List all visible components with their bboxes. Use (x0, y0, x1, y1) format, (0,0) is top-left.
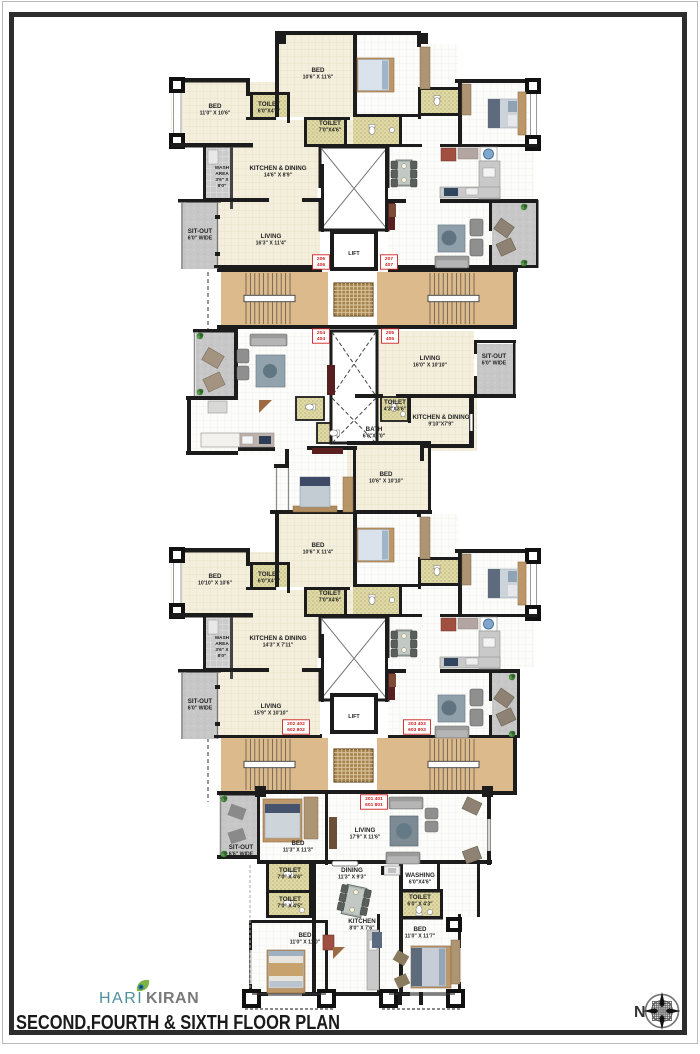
svg-text:LIVING: LIVING (355, 827, 376, 834)
svg-text:8'0": 8'0" (218, 653, 227, 659)
svg-text:TOILET: TOILET (279, 867, 301, 874)
svg-text:407: 407 (385, 262, 393, 268)
svg-text:BED: BED (379, 471, 393, 478)
svg-text:6'0" X 4'3": 6'0" X 4'3" (407, 902, 433, 908)
svg-text:WASH: WASH (215, 165, 230, 171)
svg-text:4'3"X3'6": 4'3"X3'6" (384, 407, 407, 413)
svg-text:16'3" X 11'4": 16'3" X 11'4" (256, 241, 287, 247)
svg-text:KITCHEN: KITCHEN (348, 918, 376, 925)
svg-text:KITCHEN & DINING: KITCHEN & DINING (249, 165, 306, 172)
svg-text:DINING: DINING (341, 867, 363, 874)
svg-text:11'0" X 10'6": 11'0" X 10'6" (200, 111, 231, 117)
svg-text:7'0" X 4'6": 7'0" X 4'6" (277, 875, 303, 881)
svg-text:BED: BED (208, 103, 222, 110)
svg-text:6'0" WIDE: 6'0" WIDE (188, 236, 213, 242)
svg-text:6'0"X4'0": 6'0"X4'0" (258, 579, 281, 585)
svg-text:BED: BED (311, 67, 325, 74)
svg-text:LIVING: LIVING (261, 233, 282, 240)
svg-text:406: 406 (317, 262, 325, 268)
svg-text:16'0" X 10'10": 16'0" X 10'10" (413, 363, 447, 369)
svg-text:603 803: 603 803 (408, 727, 426, 733)
svg-text:TOILET: TOILET (258, 101, 280, 108)
svg-text:204: 204 (317, 330, 325, 336)
svg-text:KITCHEN & DINING: KITCHEN & DINING (249, 635, 306, 642)
svg-text:9'10"X7'9": 9'10"X7'9" (428, 422, 454, 428)
svg-text:8'0" X 7'6": 8'0" X 7'6" (349, 926, 375, 932)
svg-text:SIT-OUT: SIT-OUT (482, 353, 507, 360)
svg-text:TOILET: TOILET (384, 399, 406, 406)
svg-text:203 403: 203 403 (408, 721, 426, 727)
svg-text:14'3" X 7'11": 14'3" X 7'11" (263, 643, 294, 649)
svg-text:BED: BED (291, 840, 305, 847)
svg-text:15'9" X 10'10": 15'9" X 10'10" (254, 711, 288, 717)
svg-text:10'6" X 10'10": 10'6" X 10'10" (369, 479, 403, 485)
svg-text:BATH: BATH (366, 426, 383, 433)
svg-text:404: 404 (317, 336, 325, 342)
svg-text:SIT-OUT: SIT-OUT (188, 698, 213, 705)
svg-text:3'6" X: 3'6" X (215, 177, 229, 183)
svg-text:N: N (634, 1004, 646, 1021)
svg-text:405: 405 (386, 336, 394, 342)
svg-text:14'6" X 8'9": 14'6" X 8'9" (264, 173, 293, 179)
svg-text:AREA: AREA (215, 641, 229, 647)
svg-text:SIT-OUT: SIT-OUT (188, 228, 213, 235)
svg-text:206: 206 (317, 256, 325, 262)
svg-text:8'0": 8'0" (218, 183, 227, 189)
svg-text:SECOND,FOURTH & SIXTH FLOOR PL: SECOND,FOURTH & SIXTH FLOOR PLAN (16, 1012, 340, 1034)
svg-text:6'0" WIDE: 6'0" WIDE (482, 361, 507, 367)
svg-text:TOILET: TOILET (319, 590, 341, 597)
svg-text:HARI: HARI (99, 990, 143, 1007)
svg-text:LIFT: LIFT (348, 714, 360, 720)
svg-text:11'3" X 11'3": 11'3" X 11'3" (283, 848, 314, 854)
svg-text:10'10" X 10'6": 10'10" X 10'6" (198, 581, 232, 587)
svg-text:LIFT: LIFT (348, 251, 360, 257)
svg-text:205: 205 (386, 330, 394, 336)
svg-text:WASHING: WASHING (405, 872, 435, 879)
svg-text:LIVING: LIVING (261, 703, 282, 710)
svg-text:WASH: WASH (215, 635, 230, 641)
svg-text:KITCHEN & DINING: KITCHEN & DINING (412, 414, 469, 421)
svg-text:6'0" WIDE: 6'0" WIDE (188, 706, 213, 712)
svg-text:AREA: AREA (215, 171, 229, 177)
svg-text:3'6" X: 3'6" X (215, 647, 229, 653)
svg-text:202 402: 202 402 (287, 721, 305, 727)
svg-text:LIVING: LIVING (420, 355, 441, 362)
svg-text:602 802: 602 802 (287, 727, 305, 733)
svg-text:SIT-OUT: SIT-OUT (229, 844, 254, 851)
svg-text:7'0"X4'6": 7'0"X4'6" (319, 598, 342, 604)
svg-text:601 801: 601 801 (365, 802, 383, 808)
svg-text:201 401: 201 401 (365, 796, 383, 802)
svg-text:11'0" X 11'7": 11'0" X 11'7" (405, 934, 436, 940)
svg-text:6'0"X4'6": 6'0"X4'6" (409, 880, 432, 886)
svg-text:BED: BED (298, 932, 312, 939)
svg-text:7'0"X4'6": 7'0"X4'6" (319, 128, 342, 134)
svg-text:10'6" X 11'4": 10'6" X 11'4" (303, 550, 334, 556)
svg-text:17'9" X 11'6": 17'9" X 11'6" (350, 835, 381, 841)
svg-text:11'0" X 11'0": 11'0" X 11'0" (290, 940, 321, 946)
svg-text:6'0"X4'0": 6'0"X4'0" (363, 434, 386, 440)
svg-text:BED: BED (413, 926, 427, 933)
svg-text:TOILET: TOILET (279, 896, 301, 903)
svg-text:TOILET: TOILET (319, 120, 341, 127)
svg-text:11'3" X 9'3": 11'3" X 9'3" (338, 875, 366, 881)
svg-text:KIRAN: KIRAN (146, 990, 199, 1007)
svg-text:6'6" WIDE: 6'6" WIDE (229, 852, 254, 858)
svg-text:7'0" X 4'5": 7'0" X 4'5" (277, 904, 303, 910)
svg-text:BED: BED (311, 542, 325, 549)
svg-text:TOILET: TOILET (258, 571, 280, 578)
svg-text:207: 207 (385, 256, 393, 262)
svg-text:TOILET: TOILET (409, 894, 431, 901)
svg-text:BED: BED (208, 573, 222, 580)
svg-text:10'6" X 11'6": 10'6" X 11'6" (303, 75, 334, 81)
svg-text:6'0"X4'0": 6'0"X4'0" (258, 109, 281, 115)
